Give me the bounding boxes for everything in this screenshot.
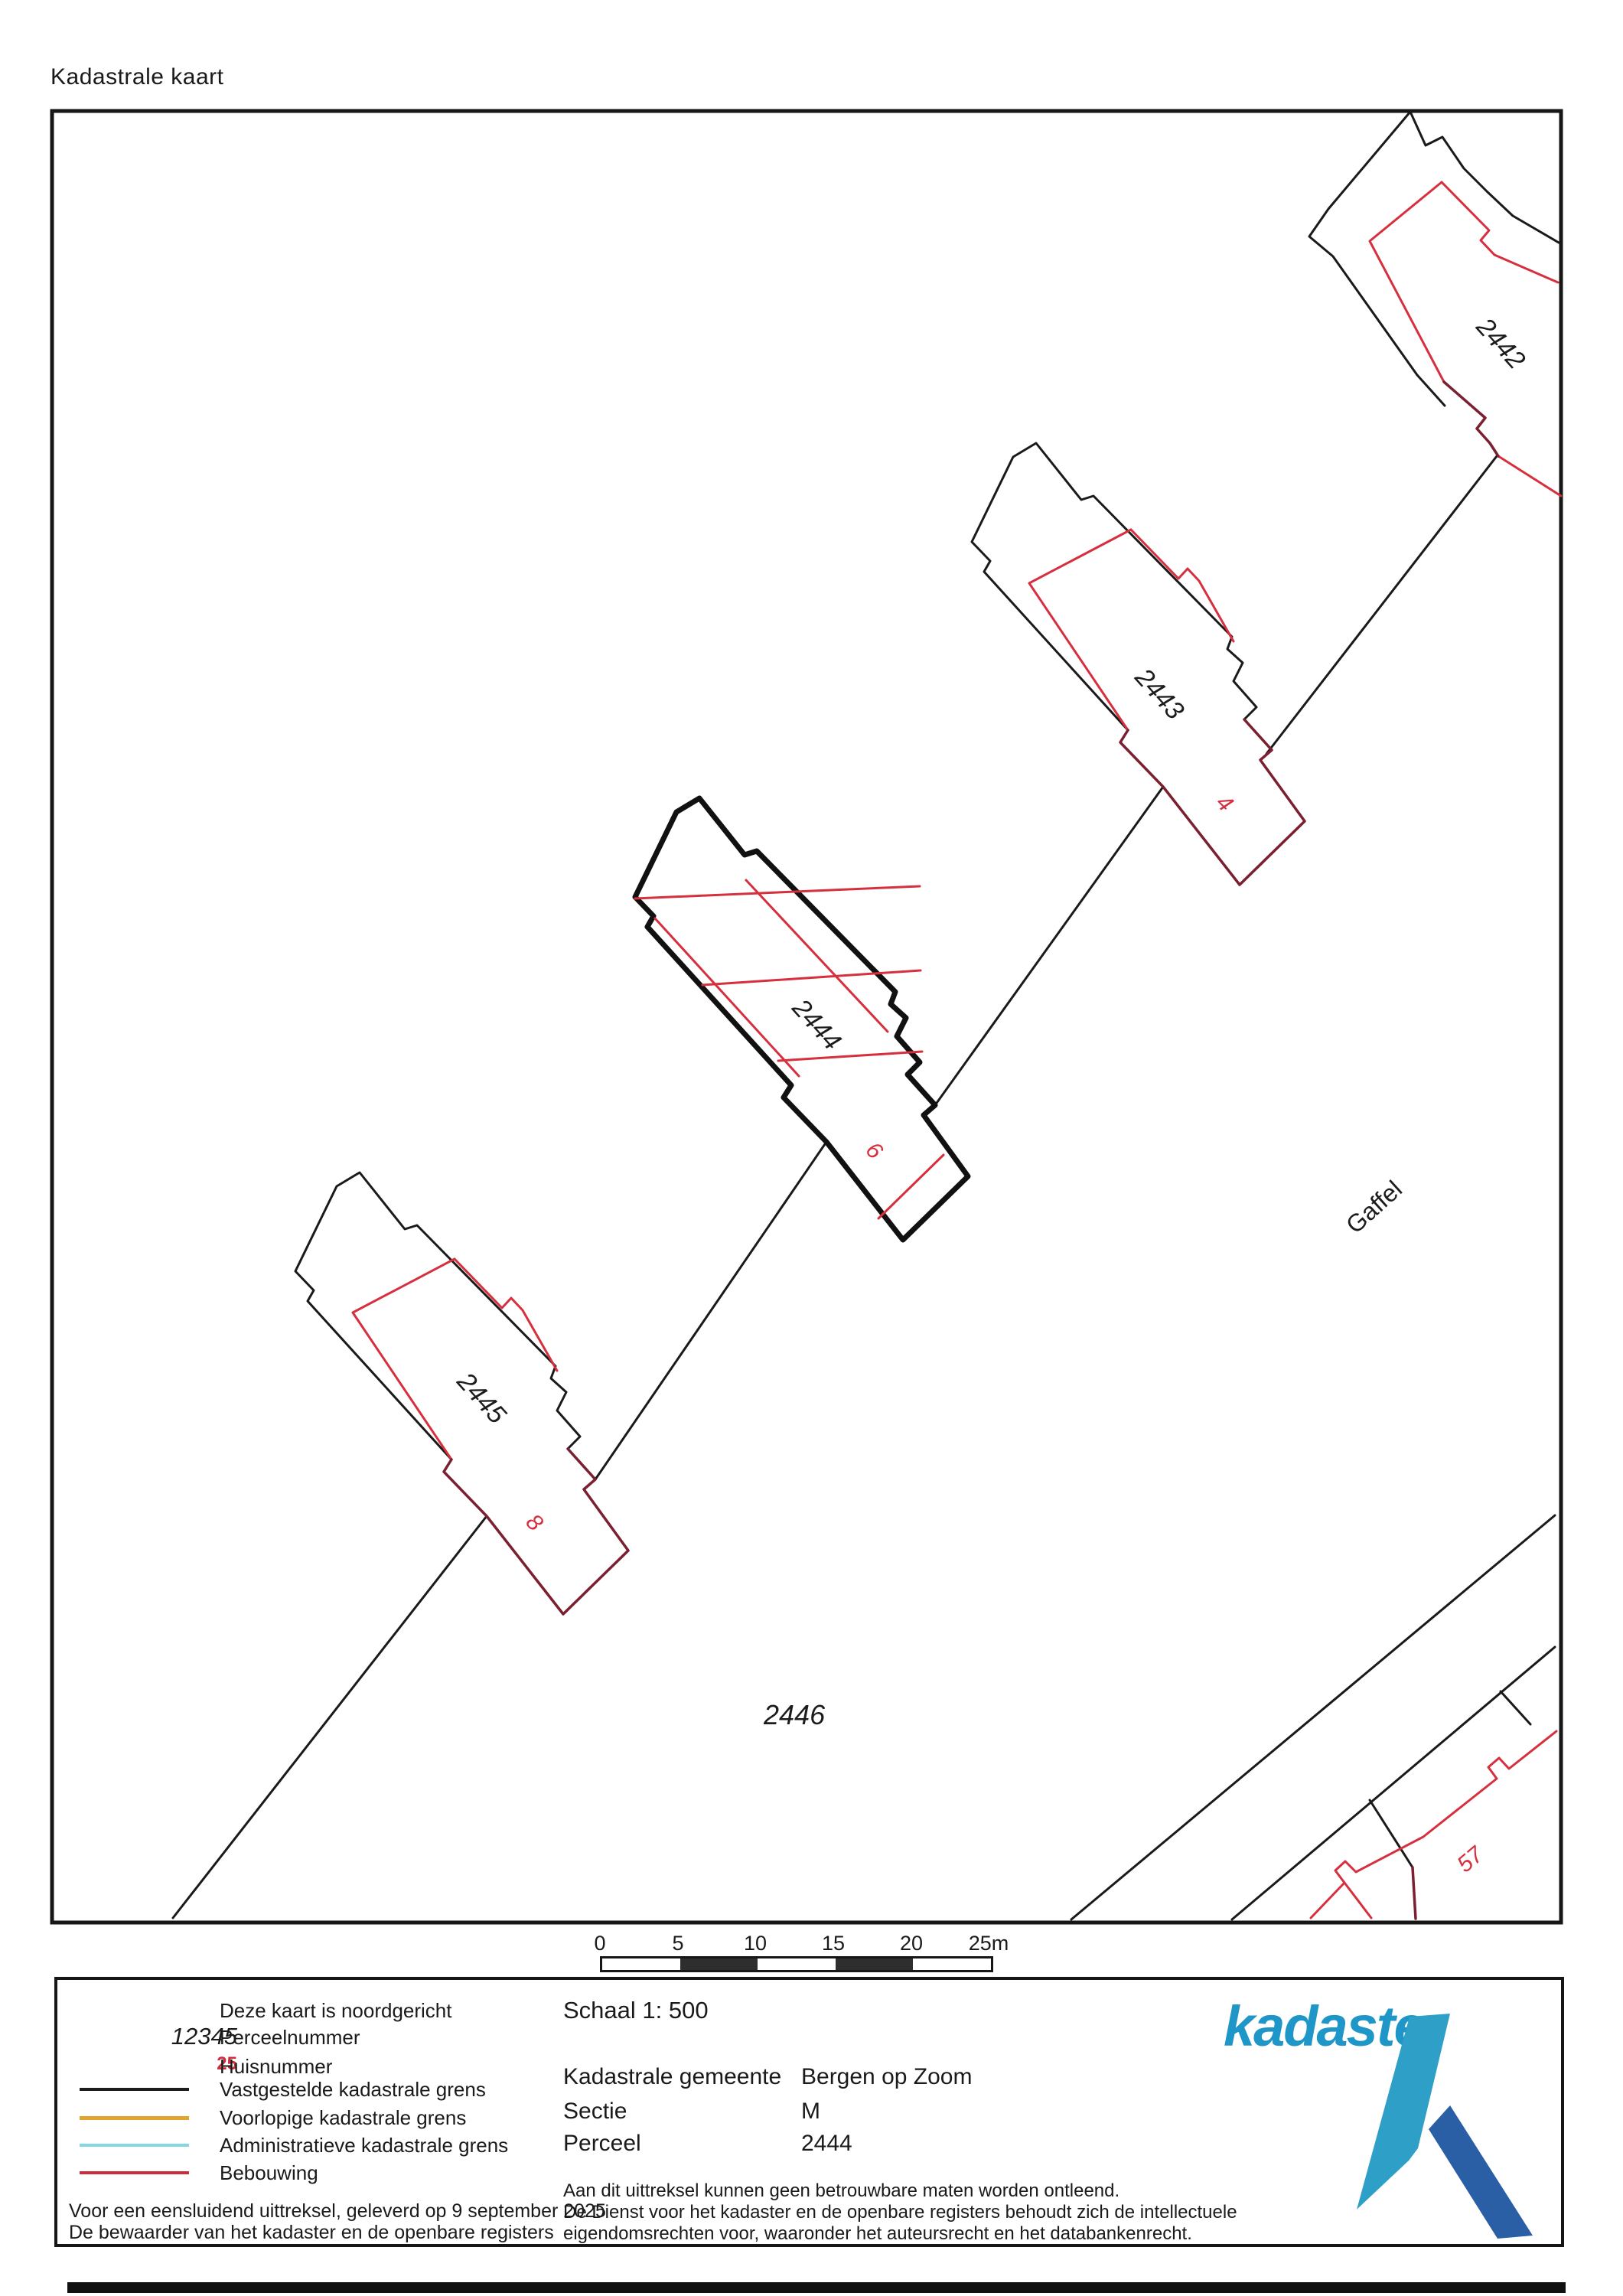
scale-tick-15: 15 (822, 1932, 845, 1955)
scale-tick-5: 5 (672, 1932, 683, 1955)
legend-line-administratief-icon (80, 2144, 189, 2147)
detail-value-gemeente: Bergen op Zoom (801, 2064, 972, 2090)
legend-line-voorlopig-icon (80, 2116, 189, 2120)
legend-line-vastgesteld-icon (80, 2088, 189, 2091)
legend-sample-huisnummer: 25 (103, 2053, 237, 2075)
kadaster-logo-mark (1343, 1995, 1542, 2240)
scale-tick-10: 10 (744, 1932, 767, 1955)
building-boundary-overlap (444, 382, 1498, 1919)
kadastrale-kaart-page: Kadastrale kaart (0, 0, 1623, 2296)
legend-label-bebouwing: Bebouwing (220, 2161, 318, 2185)
legend-label-voorlopige-grens: Voorlopige kadastrale grens (220, 2106, 466, 2130)
legend-label-administratieve-grens: Administratieve kadastrale grens (220, 2134, 508, 2157)
page-bottom-scan-bar (67, 2282, 1566, 2293)
legend-label-huisnummer: Huisnummer (220, 2055, 332, 2079)
disclaimer-line-3: eigendomsrechten voor, waaronder het aut… (563, 2223, 1192, 2245)
north-note: Deze kaart is noordgericht (220, 1999, 451, 2023)
scale-tick-0: 0 (594, 1932, 605, 1955)
detail-label-gemeente: Kadastrale gemeente (563, 2064, 781, 2090)
parcel-label-2446: 2446 (764, 1699, 825, 1731)
legend-sample-parcelnumber: 12345 (103, 2023, 237, 2050)
legend-info-box: Deze kaart is noordgericht 12345 Perceel… (54, 1977, 1564, 2247)
legend-footer-line2: De bewaarder van het kadaster en de open… (69, 2222, 554, 2244)
scale-label: Schaal 1: 500 (563, 1997, 709, 2024)
disclaimer-line-2: De Dienst voor het kadaster en de openba… (563, 2202, 1237, 2223)
legend-footer-line1: Voor een eensluidend uittreksel, gelever… (69, 2200, 606, 2223)
parcel-boundaries (173, 112, 1559, 1919)
detail-value-sectie: M (801, 2099, 820, 2125)
detail-label-sectie: Sectie (563, 2099, 627, 2125)
scale-tick-25m: 25m (969, 1932, 1009, 1955)
legend-label-perceelnummer: Perceelnummer (220, 2026, 360, 2050)
building-outlines (353, 182, 1561, 1918)
detail-label-perceel: Perceel (563, 2131, 641, 2157)
legend-line-bebouwing-icon (80, 2171, 189, 2174)
scale-bar: 0 5 10 15 20 25m (600, 1932, 992, 1975)
detail-value-perceel: 2444 (801, 2131, 852, 2157)
scale-tick-20: 20 (900, 1932, 923, 1955)
legend-label-vastgestelde-grens: Vastgestelde kadastrale grens (220, 2078, 486, 2102)
scale-bar-segments (600, 1956, 993, 1972)
disclaimer-line-1: Aan dit uittreksel kunnen geen betrouwba… (563, 2180, 1119, 2202)
